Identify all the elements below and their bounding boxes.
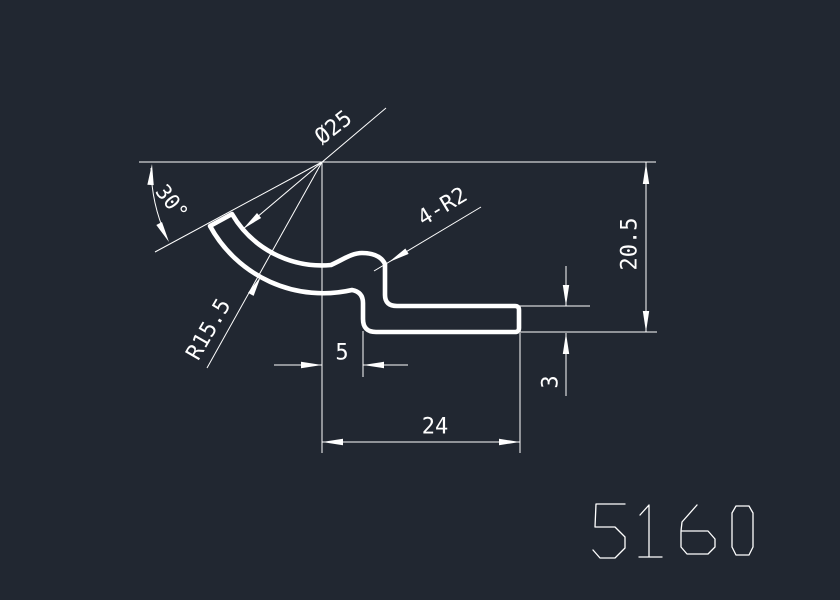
height-arrowhead-bottom [643,311,649,332]
dim-thickness: 3 [518,266,590,396]
thickness-label: 3 [539,375,564,388]
thickness-arrowhead-bottom [563,333,569,354]
cad-drawing-canvas: Ø25 30° R15.5 4-R2 [0,0,840,600]
base-arrowhead-right [499,439,520,445]
dim-diameter: Ø25 [241,106,386,232]
step-arrowhead-right [363,362,384,368]
angle-label: 30° [151,180,193,225]
angle-arrowhead-top [147,164,155,185]
diameter-label: Ø25 [310,106,357,150]
part-number-text: 5160 [604,498,744,566]
step-width-label: 5 [335,341,348,366]
part-number: 5160 [593,498,753,566]
dim-base-length: 24 [322,333,520,453]
profile-outline [210,214,519,332]
overall-height-label: 20.5 [618,218,643,271]
base-length-label: 24 [422,415,449,440]
fillet-arrowhead [387,248,408,264]
base-arrowhead-left [322,439,343,445]
angle-arrowhead-bottom [156,222,172,244]
step-arrowhead-left [301,362,322,368]
profile-path [210,214,519,332]
cad-viewport[interactable]: Ø25 30° R15.5 4-R2 [0,0,840,600]
height-arrowhead-top [643,163,649,184]
thickness-arrowhead-top [563,285,569,306]
dim-step-width: 5 [274,331,408,377]
fillet-label: 4-R2 [413,183,471,232]
dim-fillet: 4-R2 [374,183,481,271]
dim-angle: 30° [147,164,193,244]
